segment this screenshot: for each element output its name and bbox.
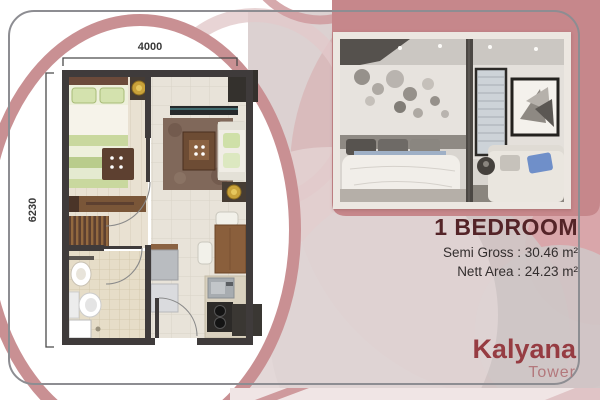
floor-plan: 4000 6230 bbox=[20, 30, 270, 365]
brand-name: Kalyana bbox=[472, 336, 576, 363]
photo-window bbox=[476, 69, 506, 155]
photo-ceiling bbox=[340, 39, 564, 69]
bottom-strip bbox=[230, 388, 600, 400]
photo-sofa bbox=[488, 145, 564, 202]
unit-info: 1 BEDROOM Semi Gross : 30.46 m² Nett Are… bbox=[434, 214, 578, 279]
coffee-table bbox=[183, 132, 215, 170]
tv-console bbox=[170, 106, 238, 115]
flyer-root: 4000 6230 bbox=[0, 0, 600, 400]
side-table-lamp bbox=[222, 182, 246, 202]
wardrobe-rack bbox=[69, 216, 109, 246]
unit-type-title: 1 BEDROOM bbox=[434, 214, 578, 241]
brand-subtitle: Tower bbox=[472, 365, 576, 381]
dimension-width-label: 4000 bbox=[138, 41, 162, 53]
semi-gross-line: Semi Gross : 30.46 m² bbox=[434, 245, 578, 260]
photo-divider bbox=[466, 39, 473, 202]
dimension-height bbox=[46, 73, 54, 347]
stove bbox=[207, 302, 233, 332]
bed-tray bbox=[102, 148, 134, 180]
photo-abstract-art bbox=[512, 79, 558, 135]
brand-block: Kalyana Tower bbox=[472, 336, 576, 381]
dimension-width bbox=[63, 58, 237, 66]
photo-side-table bbox=[477, 157, 495, 175]
entry-door-leaf bbox=[155, 298, 159, 338]
nett-area-line: Nett Area : 24.23 m² bbox=[434, 264, 578, 279]
toilet bbox=[69, 292, 101, 318]
apartment-photo-frame bbox=[333, 32, 571, 209]
dimension-height-label: 6230 bbox=[27, 198, 39, 222]
bedroom-door-leaf bbox=[146, 138, 150, 182]
photo-bed bbox=[340, 135, 466, 202]
dresser bbox=[69, 196, 146, 212]
sofa bbox=[218, 122, 246, 180]
bedroom-photo bbox=[340, 39, 564, 202]
